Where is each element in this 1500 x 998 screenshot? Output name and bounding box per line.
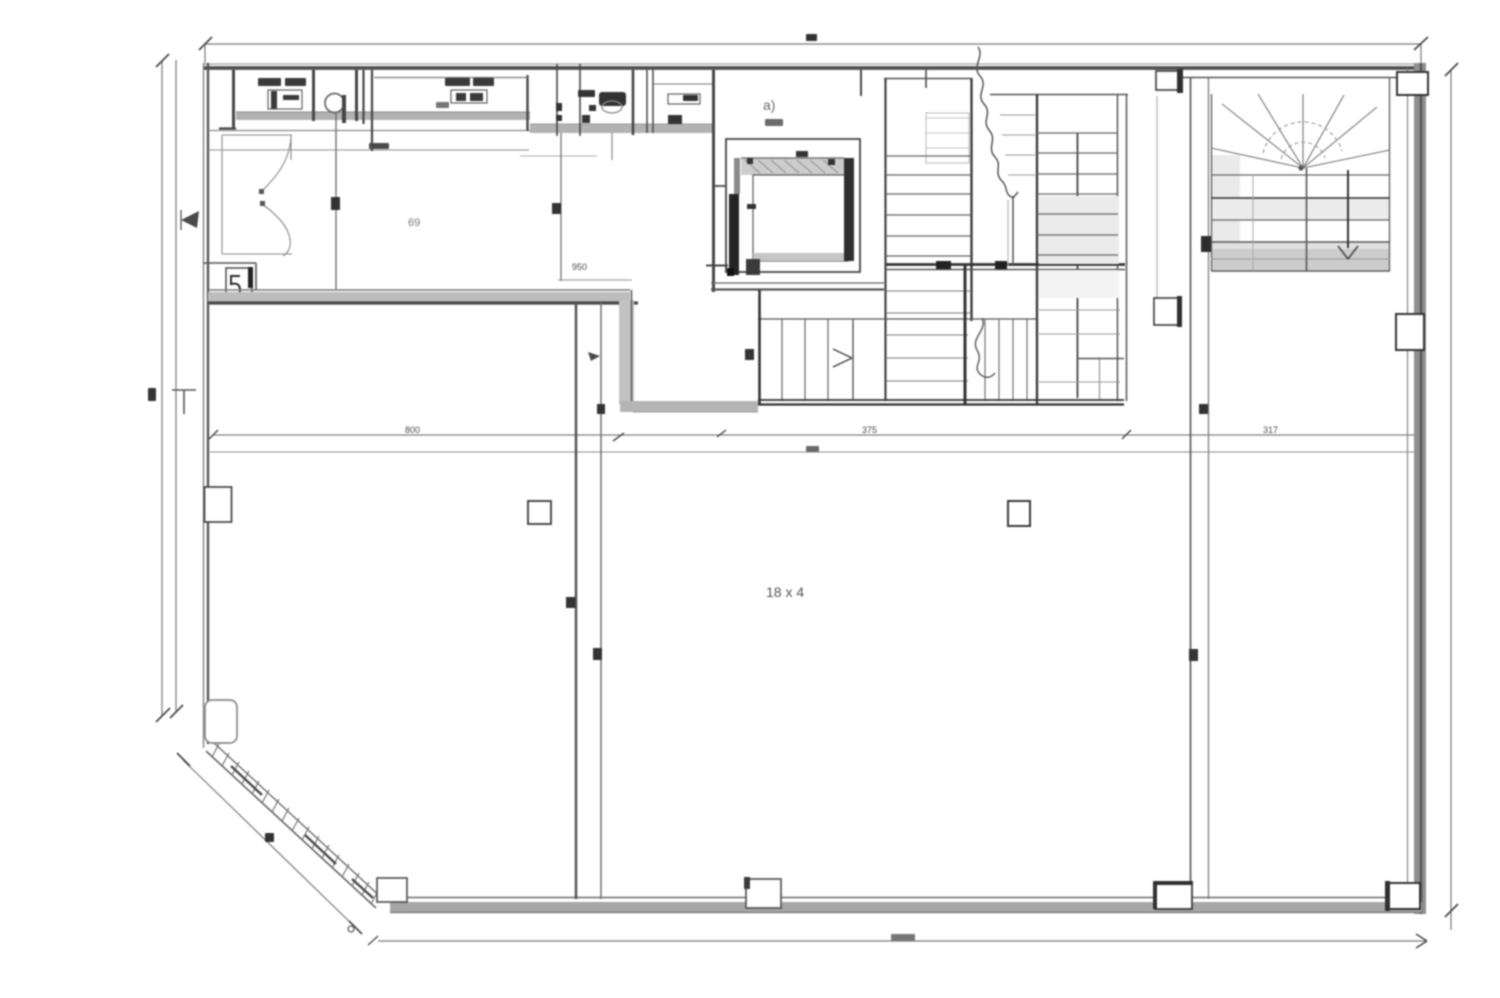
svg-text:950: 950 — [572, 262, 587, 272]
svg-text:317: 317 — [1263, 425, 1278, 435]
svg-text:18 x 4: 18 x 4 — [766, 584, 804, 600]
svg-text:375: 375 — [862, 425, 877, 435]
svg-text:800: 800 — [405, 425, 420, 435]
svg-text:69: 69 — [408, 217, 420, 229]
svg-text:a): a) — [763, 97, 775, 113]
